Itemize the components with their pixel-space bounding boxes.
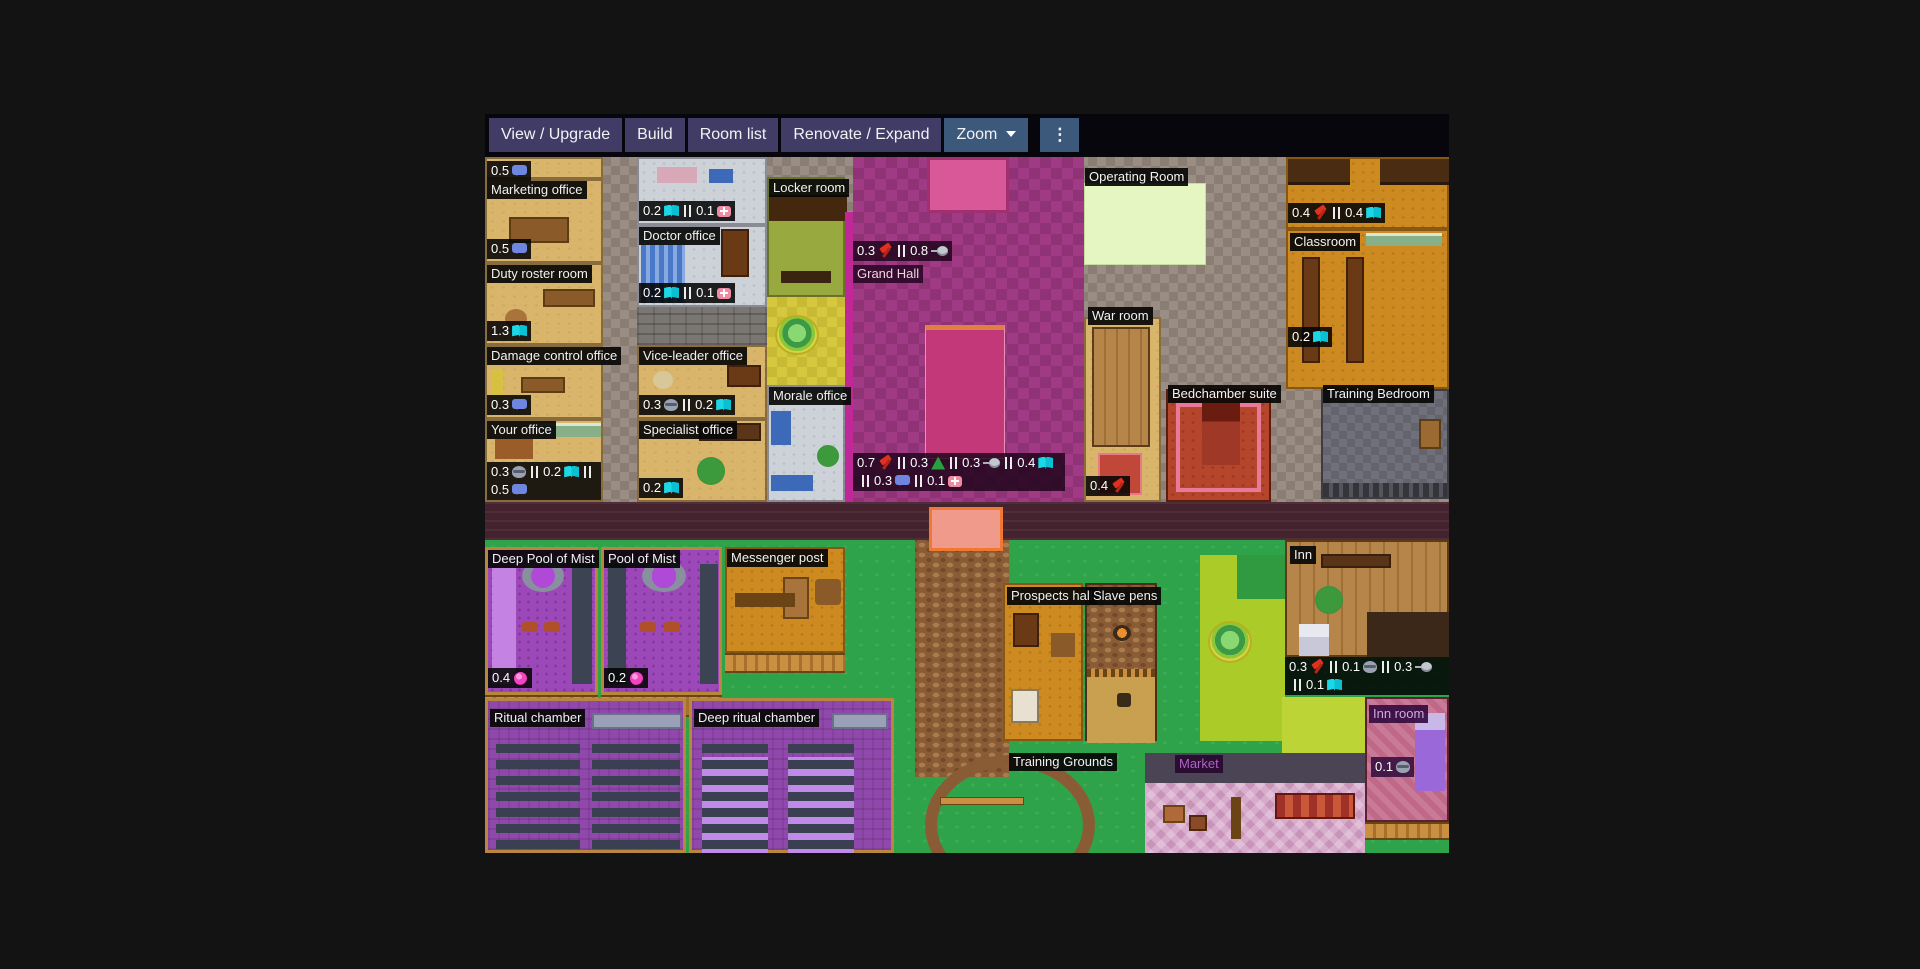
bubble-icon	[512, 243, 527, 253]
screen: View / Upgrade Build Room list Renovate …	[0, 0, 1920, 969]
pan-icon	[983, 457, 1000, 470]
stat-separator	[950, 457, 957, 469]
stat-mask: 0.3	[643, 396, 678, 414]
room-label: Deep Pool of Mist	[488, 550, 599, 568]
room-stats: 0.4	[488, 668, 532, 688]
room-stats: 0.4	[1086, 476, 1130, 496]
room-stats: 0.5	[487, 161, 531, 181]
stat-tent: 0.3	[910, 454, 945, 472]
highlight-zone	[1200, 555, 1285, 741]
room-label: Doctor office	[639, 227, 720, 245]
room-doctor-office[interactable]: Doctor office 0.20.1	[637, 225, 767, 307]
book-icon	[1366, 207, 1381, 220]
furniture-decor	[1013, 613, 1039, 647]
view-upgrade-button[interactable]: View / Upgrade	[489, 118, 622, 152]
pew-rows-decor	[788, 741, 854, 849]
room-stats: 0.2	[604, 668, 648, 688]
bubble-icon	[512, 165, 527, 175]
book-icon	[664, 287, 679, 300]
hammer-icon	[1313, 206, 1328, 220]
room-label: Ritual chamber	[490, 709, 585, 727]
room-stats: 0.30.10.30.1	[1285, 657, 1449, 695]
rug-decor	[927, 157, 1009, 213]
stat-mask: 0.1	[1342, 658, 1377, 676]
desk-decor	[521, 377, 565, 393]
room-stats: 0.70.30.30.40.30.1	[853, 453, 1065, 491]
room-stats: 1.3	[487, 321, 531, 341]
room-label: Morale office	[769, 387, 851, 405]
bubble-icon	[895, 475, 910, 485]
bookshelf-decor	[1288, 159, 1350, 185]
counter-decor	[735, 593, 795, 607]
stat-separator	[684, 287, 691, 299]
game-window: View / Upgrade Build Room list Renovate …	[485, 114, 1449, 853]
room-label: Slave pens	[1089, 587, 1161, 605]
stat-separator	[1005, 457, 1012, 469]
stat-book: 0.2	[1292, 328, 1328, 346]
mask-icon	[1363, 661, 1377, 673]
shelf-decor	[721, 229, 749, 277]
bench-decor	[781, 271, 831, 283]
room-damage-control-office[interactable]: Damage control office 0.3	[485, 345, 603, 419]
book-icon	[512, 325, 527, 338]
stat-book: 0.2	[695, 396, 731, 414]
cart-decor	[815, 579, 841, 605]
stat-mist: 0.2	[608, 669, 644, 687]
book-icon	[1038, 457, 1053, 470]
room-label: Locker room	[769, 179, 849, 197]
book-icon	[664, 205, 679, 218]
room-stats: 0.2	[639, 478, 683, 498]
room-war-room[interactable]: War room 0.4	[1084, 317, 1161, 502]
bed-decor	[1299, 624, 1329, 656]
room-label: Marketing office	[487, 181, 587, 199]
room-morale-office[interactable]: Morale office	[767, 385, 845, 502]
fence-decor	[1087, 669, 1155, 677]
stat-pan: 0.3	[962, 454, 1000, 472]
room-label: Grand Hall	[853, 265, 923, 283]
sofa-decor	[771, 475, 813, 491]
book-icon	[1313, 331, 1328, 344]
pen-floor-decor	[1087, 677, 1155, 743]
brick-wall	[637, 307, 767, 345]
stat-hammer: 0.7	[857, 454, 893, 472]
room-duty-roster-room[interactable]: Duty roster room 1.3	[485, 263, 603, 345]
zoom-button[interactable]: Zoom	[944, 118, 1028, 152]
build-button[interactable]: Build	[625, 118, 685, 152]
stat-separator	[683, 399, 690, 411]
tent-icon	[931, 457, 945, 470]
highlight-zone-strip	[1282, 697, 1365, 757]
room-slave-pens[interactable]: Slave pens	[1085, 583, 1157, 741]
room-deep-pool-of-mist[interactable]: Deep Pool of Mist 0.4	[485, 547, 598, 695]
crate-decor	[1189, 815, 1207, 831]
fence	[1365, 822, 1449, 840]
room-pool-of-mist[interactable]: Pool of Mist 0.2	[601, 547, 722, 695]
room-label: Your office	[487, 421, 556, 439]
pew-rows-decor	[496, 737, 580, 849]
gold-decor	[491, 369, 503, 395]
room-inn-room[interactable]: Inn room 0.1	[1365, 697, 1449, 822]
stat-pan: 0.8	[910, 242, 948, 260]
stat-mask: 0.1	[1375, 758, 1410, 776]
stat-book: 0.4	[1017, 454, 1053, 472]
bed-decor	[1011, 689, 1039, 723]
hammer-icon	[878, 244, 893, 258]
bed-decor	[1415, 713, 1445, 791]
cabinet-decor	[1419, 419, 1441, 449]
room-library[interactable]: 0.40.4	[1286, 157, 1449, 229]
toolbar: View / Upgrade Build Room list Renovate …	[485, 114, 1449, 157]
room-locker-room[interactable]: Locker room	[767, 177, 845, 297]
room-specialist-office[interactable]: Specialist office 0.2	[637, 419, 767, 502]
room-grand-hall[interactable]: 0.30.8 Grand Hall 0.70.30.30.40.30.1	[853, 157, 1084, 502]
room-stats: 0.3	[487, 395, 531, 415]
mat-decor	[640, 622, 656, 632]
book-icon	[716, 399, 731, 412]
counter-decor	[1321, 554, 1391, 568]
room-classroom[interactable]: Classroom 0.2	[1286, 229, 1449, 389]
furniture-decor	[1051, 633, 1075, 657]
pole-decor	[1231, 797, 1241, 839]
pan-icon	[1415, 661, 1432, 674]
stat-medkit: 0.1	[696, 202, 731, 220]
room-stats: 0.5	[487, 239, 531, 259]
book-icon	[1327, 679, 1342, 692]
chevron-down-icon	[1006, 131, 1016, 142]
mat-decor	[664, 622, 680, 632]
tree-decor	[697, 457, 725, 485]
room-label: Duty roster room	[487, 265, 592, 283]
room-label: Training Grounds	[1009, 753, 1117, 771]
room-infirmary[interactable]: 0.20.1	[637, 157, 767, 225]
stat-mist: 0.4	[492, 669, 528, 687]
stat-book: 0.2	[643, 284, 679, 302]
hammer-icon	[1111, 479, 1126, 493]
war-table-decor	[1092, 327, 1150, 447]
bench-column-decor	[700, 564, 718, 684]
desk-decor	[495, 439, 533, 459]
stat-separator	[898, 245, 905, 257]
room-office-sliver[interactable]: 0.5	[485, 157, 603, 179]
tree-decor	[817, 445, 839, 467]
stat-separator	[1330, 661, 1337, 673]
room-list-button[interactable]: Room list	[688, 118, 779, 152]
stall-awning-decor	[1275, 793, 1355, 819]
room-label: Inn	[1290, 546, 1316, 564]
stat-book: 1.3	[491, 322, 527, 340]
room-label: Training Bedroom	[1323, 385, 1434, 403]
altar-decor	[592, 713, 682, 729]
book-icon	[564, 466, 579, 479]
mist-water-decor	[492, 568, 516, 684]
stat-separator	[898, 457, 905, 469]
room-stats: 0.1	[1371, 757, 1414, 777]
room-bedchamber-suite[interactable]: Bedchamber suite	[1166, 389, 1271, 502]
room-operating-room[interactable]: Operating Room	[1084, 183, 1206, 265]
mist-icon	[513, 671, 528, 686]
mask-icon	[664, 399, 678, 411]
room-stats: 0.40.4	[1288, 203, 1385, 223]
book-icon	[664, 482, 679, 495]
pan-icon	[931, 245, 948, 258]
stat-medkit: 0.1	[696, 284, 731, 302]
sofa-decor	[771, 411, 791, 445]
lockers-decor	[769, 195, 847, 221]
room-label: Specialist office	[639, 421, 737, 439]
hammer-icon	[878, 456, 893, 470]
bubble-icon	[512, 484, 527, 494]
stat-bubble: 0.5	[491, 240, 527, 258]
room-label: Bedchamber suite	[1168, 385, 1281, 403]
room-stats: 0.2	[1288, 327, 1332, 347]
mat-decor	[544, 622, 560, 632]
medkit-icon	[717, 206, 731, 217]
bench-decor	[543, 289, 595, 307]
room-label: War room	[1088, 307, 1153, 325]
highlighted-door[interactable]	[929, 507, 1003, 551]
room-stats: 0.30.20.5	[487, 462, 601, 500]
stat-hammer: 0.4	[1090, 477, 1126, 495]
portal-icon[interactable]	[775, 315, 819, 355]
room-stats: 0.20.1	[639, 283, 735, 303]
chair-decor	[709, 169, 733, 183]
bed-decor	[1202, 403, 1240, 465]
room-prospects-hall[interactable]: Prospects hall	[1003, 583, 1083, 741]
stat-separator	[915, 475, 922, 487]
zoom-button-label: Zoom	[956, 126, 997, 143]
hammer-icon	[1310, 660, 1325, 674]
altar-decor	[832, 713, 888, 729]
stat-separator	[684, 205, 691, 217]
room-label: Inn room	[1369, 705, 1428, 723]
stat-separator	[531, 466, 538, 478]
room-label: Classroom	[1290, 233, 1360, 251]
stat-hammer: 0.4	[1292, 204, 1328, 222]
room-label: Messenger post	[727, 549, 828, 567]
mist-icon	[629, 671, 644, 686]
stat-book: 0.2	[643, 202, 679, 220]
stat-separator	[584, 466, 591, 478]
room-label: Damage control office	[487, 347, 621, 365]
room-ritual-chamber[interactable]: Ritual chamber	[485, 698, 686, 853]
room-label: Operating Room	[1085, 168, 1188, 186]
room-label: Pool of Mist	[604, 550, 680, 568]
room-inn[interactable]: Inn	[1285, 540, 1449, 657]
room-your-office[interactable]: Your office 0.30.20.5	[485, 419, 603, 502]
room-training-bedroom[interactable]: Training Bedroom	[1321, 389, 1449, 499]
sofa-decor	[657, 167, 697, 183]
stat-bubble: 0.5	[491, 481, 527, 499]
stat-hammer: 0.3	[857, 242, 893, 260]
mask-icon	[512, 466, 526, 478]
grate-decor	[1323, 483, 1447, 497]
room-label: Prospects hall	[1007, 587, 1097, 605]
overflow-menu-button[interactable]: ⋮	[1040, 118, 1079, 152]
room-label: Deep ritual chamber	[694, 709, 819, 727]
bookshelf-decor	[1380, 159, 1449, 185]
campfire-decor	[1113, 625, 1131, 641]
pew-rows-decor	[592, 737, 680, 849]
throne-rug-decor	[925, 325, 1005, 459]
stat-pan: 0.3	[1394, 658, 1432, 676]
room-marketing-office[interactable]: Marketing office 0.5	[485, 179, 603, 263]
bubble-icon	[512, 399, 527, 409]
yellow-corridor	[767, 297, 845, 385]
stat-medkit: 0.1	[927, 472, 962, 490]
medkit-icon	[717, 288, 731, 299]
room-stats: 0.30.8	[853, 241, 952, 261]
tree-decor	[1315, 586, 1343, 614]
stat-book: 0.2	[643, 479, 679, 497]
grass-patch-decor	[1237, 555, 1285, 599]
magenta-wall	[845, 212, 853, 502]
pew-rows-decor	[702, 741, 768, 849]
chalkboard-decor	[1366, 233, 1442, 246]
stat-separator	[1333, 207, 1340, 219]
room-messenger-post[interactable]: Messenger post	[725, 547, 845, 653]
mask-icon	[1396, 761, 1410, 773]
mat-decor	[522, 622, 538, 632]
stat-separator	[1382, 661, 1389, 673]
kitchen-decor	[1367, 612, 1449, 657]
bookcase-decor	[727, 365, 761, 387]
stat-bubble: 0.5	[491, 162, 527, 180]
renovate-expand-button[interactable]: Renovate / Expand	[781, 118, 941, 152]
stat-hammer: 0.3	[1289, 658, 1325, 676]
portal-icon[interactable]	[1208, 621, 1252, 663]
stat-separator	[862, 475, 869, 487]
desk-row-decor	[1302, 257, 1320, 363]
stat-book: 0.1	[1306, 676, 1342, 694]
pot-decor	[1117, 693, 1131, 707]
stat-bubble: 0.3	[491, 396, 527, 414]
stat-mask: 0.3	[491, 463, 526, 481]
globe-decor	[653, 371, 673, 389]
crate-decor	[1163, 805, 1185, 823]
room-label: Vice-leader office	[639, 347, 747, 365]
room-market[interactable]	[1145, 783, 1365, 853]
stat-separator	[1294, 679, 1301, 691]
room-label: Market	[1175, 755, 1223, 773]
stat-book: 0.4	[1345, 204, 1381, 222]
bench-column-decor	[572, 564, 592, 684]
room-stats: 0.20.1	[639, 201, 735, 221]
game-map: 0.5 Marketing office 0.5 Duty roster roo…	[485, 157, 1449, 853]
fence	[725, 653, 845, 673]
room-vice-leader-office[interactable]: Vice-leader office 0.30.2	[637, 345, 767, 419]
stat-book: 0.2	[543, 463, 579, 481]
medkit-icon	[948, 476, 962, 487]
room-stats: 0.30.2	[639, 395, 735, 415]
dirt-path	[915, 540, 1009, 777]
room-deep-ritual-chamber[interactable]: Deep ritual chamber	[689, 698, 894, 853]
bench-column-decor	[608, 564, 626, 684]
desk-row-decor	[1346, 257, 1364, 363]
stat-bubble: 0.3	[874, 472, 910, 490]
